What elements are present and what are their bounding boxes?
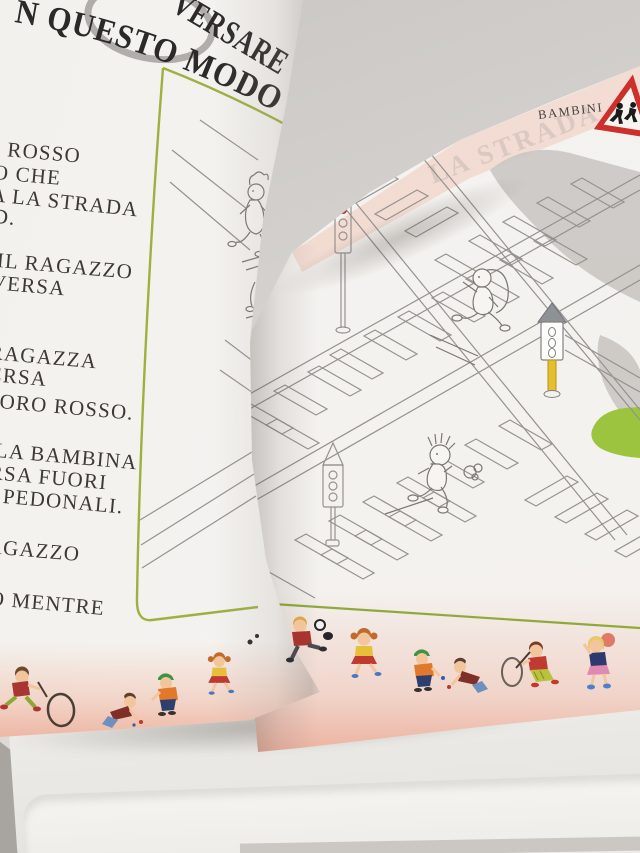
left-page-text-line: VERSA [0,270,67,301]
boy-running-outline [385,433,482,514]
girl-running-outline [430,269,510,365]
grass-patch [591,407,640,458]
traffic-light-yellow-pole-icon [538,303,566,398]
photo-open-book-scene: LA STRADA BAMBINI [0,0,640,853]
traffic-light-outline-icon [323,443,343,546]
left-page-text-line: ERSA [0,362,48,392]
left-page-text-line: D. [0,204,17,231]
